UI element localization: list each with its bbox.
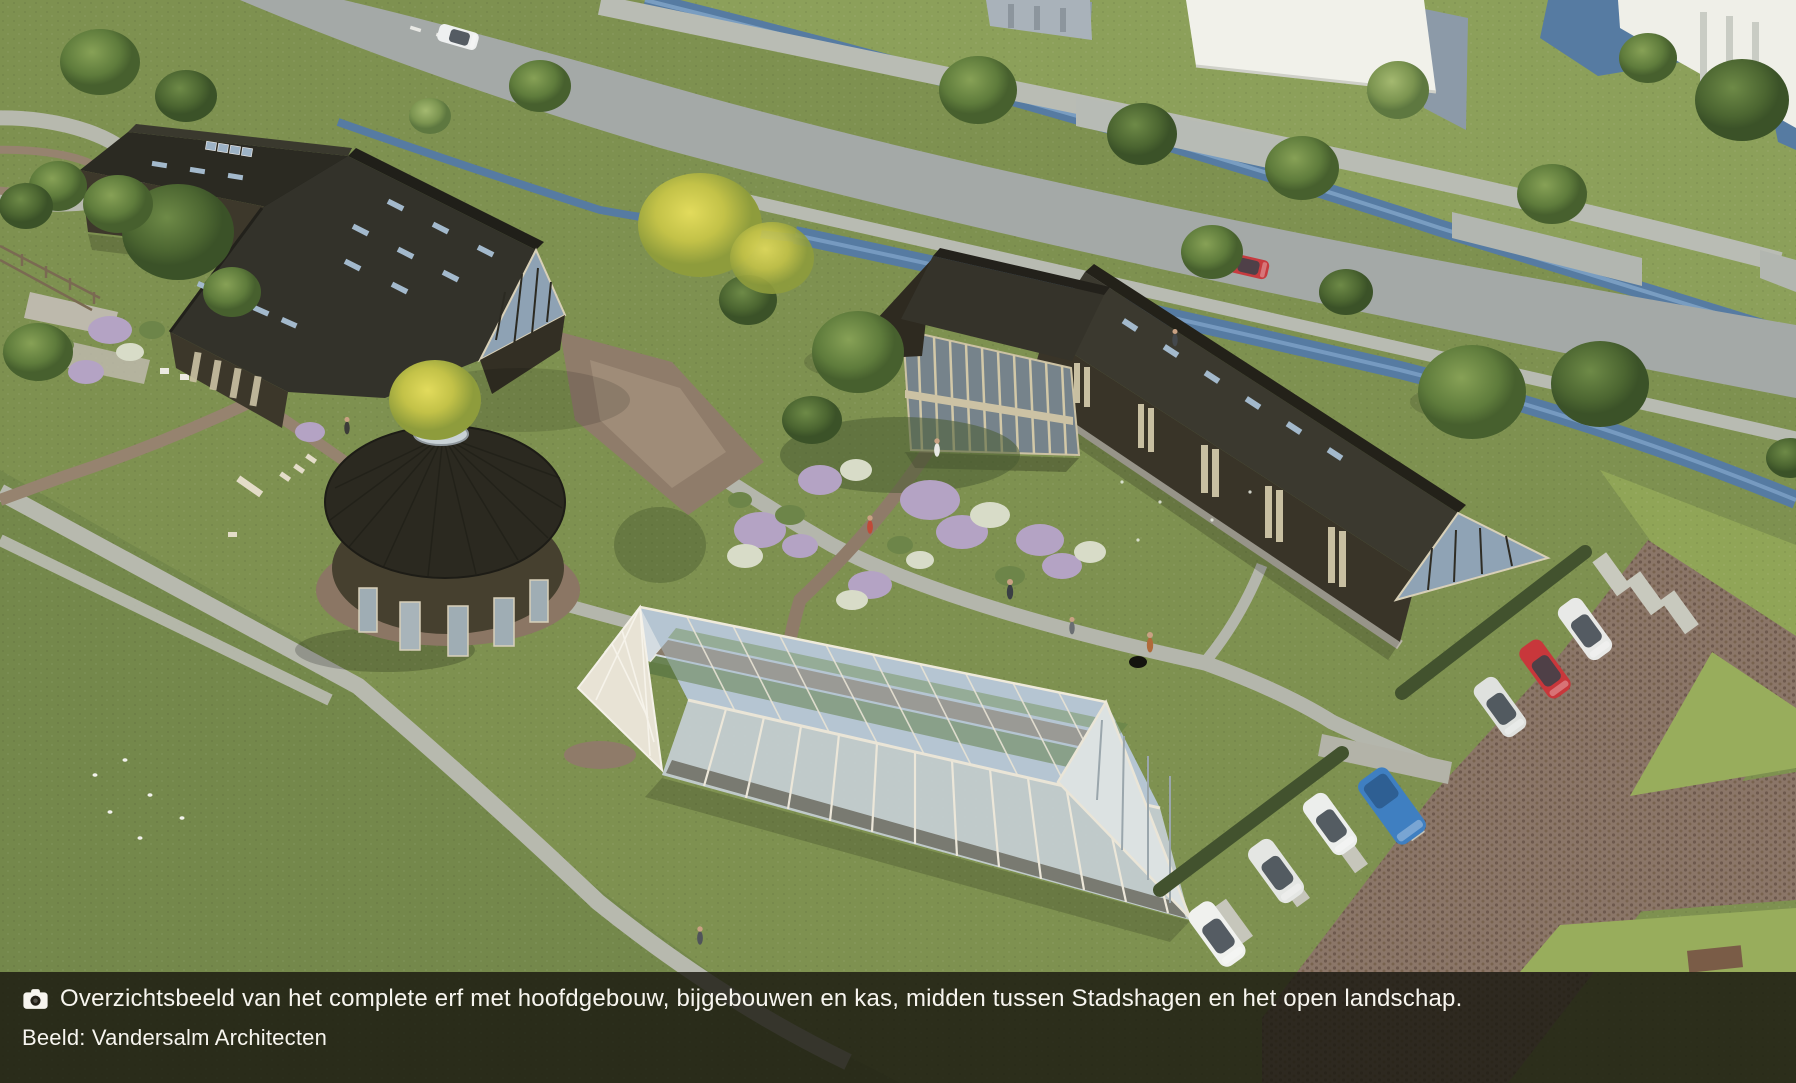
article-image: Overzichtsbeeld van het complete erf met… — [0, 0, 1796, 1083]
caption-bar: Overzichtsbeeld van het complete erf met… — [0, 972, 1796, 1083]
dog — [1129, 656, 1147, 668]
yellow-tree-2 — [389, 360, 481, 440]
caption-text: Overzichtsbeeld van het complete erf met… — [60, 985, 1462, 1014]
aerial-architectural-rendering — [0, 0, 1796, 1083]
camera-icon — [22, 988, 49, 1010]
caption-credit: Beeld: Vandersalm Architecten — [22, 1025, 1774, 1051]
